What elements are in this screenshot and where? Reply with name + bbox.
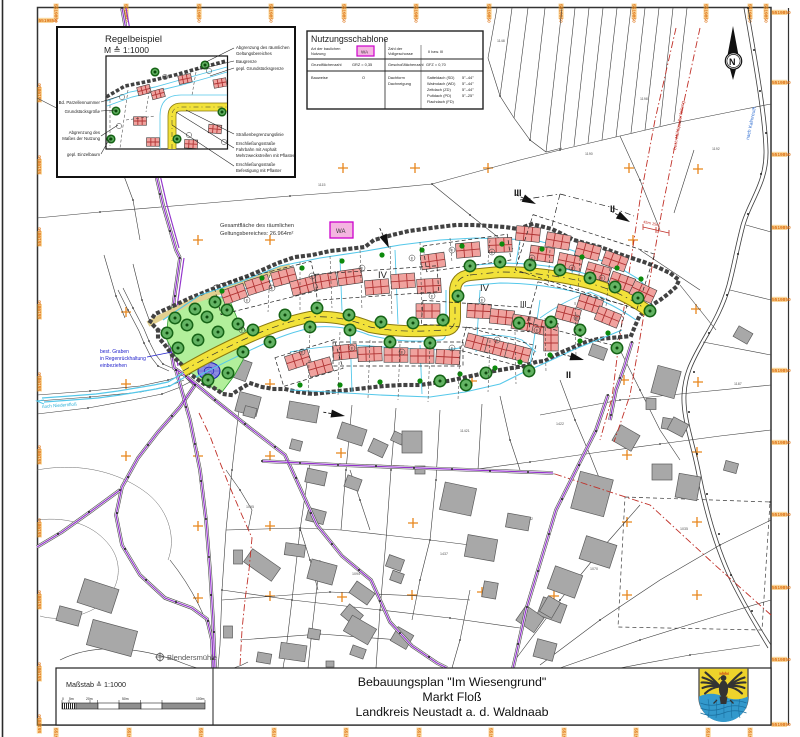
svg-text:5519850: 5519850 [341,4,347,23]
svg-text:Straßenbegrenzungslinie: Straßenbegrenzungslinie [236,132,284,137]
svg-text:8: 8 [536,329,538,333]
svg-text:GRZ = 0,35: GRZ = 0,35 [352,62,372,67]
svg-text:Bebauungsplan "Im Wiesengrund": Bebauungsplan "Im Wiesengrund" [358,675,547,689]
svg-text:GFZ = 0,70: GFZ = 0,70 [426,62,447,67]
svg-text:1192: 1192 [712,147,720,151]
svg-text:5519850: 5519850 [37,83,43,102]
svg-text:best. Graben: best. Graben [100,349,129,355]
svg-text:Geltungsbereiches: 26.964m²: Geltungsbereiches: 26.964m² [220,231,294,237]
svg-text:8: 8 [571,267,573,271]
svg-text:5519850: 5519850 [416,728,422,737]
svg-text:0: 0 [62,697,64,701]
svg-text:5519850: 5519850 [37,662,43,681]
svg-text:5519850: 5519850 [486,4,492,23]
svg-text:8: 8 [361,267,363,271]
svg-text:1422: 1422 [556,422,564,426]
svg-text:5°–44°: 5°–44° [462,81,474,86]
svg-text:8: 8 [311,275,313,279]
svg-text:5519850: 5519850 [488,728,494,737]
svg-text:5519850: 5519850 [772,368,791,374]
svg-text:50m: 50m [122,697,129,701]
svg-text:5519850: 5519850 [772,225,791,231]
svg-text:Grundstücksgröße: Grundstücksgröße [65,109,101,114]
svg-text:5519850: 5519850 [772,152,791,158]
svg-text:8: 8 [301,351,303,355]
svg-text:Abgrenzung des räumlichen: Abgrenzung des räumlichen [236,45,290,50]
svg-text:8: 8 [481,299,483,303]
svg-text:WA: WA [361,50,368,55]
svg-text:II: II [610,204,615,214]
svg-text:8: 8 [491,251,493,255]
svg-text:8: 8 [451,347,453,351]
svg-text:Erschließungsstraße: Erschließungsstraße [236,162,276,167]
svg-text:5519850: 5519850 [37,714,43,733]
svg-text:5519850: 5519850 [196,4,202,23]
svg-text:Geltungsbereiches: Geltungsbereiches [236,51,272,56]
svg-text:Dachneigung: Dachneigung [388,81,411,86]
svg-text:Landkreis Neustadt a. d. Waldn: Landkreis Neustadt a. d. Waldnaab [355,705,548,719]
svg-text:1070: 1070 [590,567,598,571]
svg-text:5519850: 5519850 [271,728,277,737]
svg-text:Zeltdach (ZD): Zeltdach (ZD) [427,87,451,92]
svg-text:Baugrenze: Baugrenze [236,59,257,64]
svg-text:5519850: 5519850 [772,512,791,518]
svg-text:Dachform: Dachform [388,75,405,80]
svg-text:gepl. Grundstücksgrenze: gepl. Grundstücksgrenze [236,66,284,71]
svg-text:1094: 1094 [352,572,360,576]
svg-text:5519850: 5519850 [763,4,769,23]
svg-text:Flachdach (FD): Flachdach (FD) [427,99,455,104]
svg-text:Walmdach (WD): Walmdach (WD) [427,81,456,86]
svg-text:Erschließungsstraße: Erschließungsstraße [236,141,276,146]
svg-text:Befestigung mit Pflaster: Befestigung mit Pflaster [236,168,282,173]
svg-text:5519850: 5519850 [772,657,791,663]
svg-text:II: II [566,370,571,380]
svg-text:1190: 1190 [585,152,593,156]
svg-text:Satteldach (SD): Satteldach (SD) [427,75,455,80]
svg-text:5519850: 5519850 [198,728,204,737]
svg-text:5519850: 5519850 [37,445,43,464]
svg-text:O: O [362,75,365,80]
svg-text:8: 8 [241,329,243,333]
svg-text:5m: 5m [69,697,74,701]
svg-text:100m: 100m [196,697,205,701]
svg-text:5519850: 5519850 [39,18,58,24]
svg-text:5519850: 5519850 [37,518,43,537]
svg-text:Markt Floß: Markt Floß [422,690,482,704]
svg-text:WA: WA [336,229,345,235]
svg-text:N: N [729,57,736,67]
svg-text:5519850: 5519850 [343,728,349,737]
svg-text:20m: 20m [86,697,93,701]
svg-text:einbeziehen: einbeziehen [100,363,127,369]
svg-text:Vollgeschosse: Vollgeschosse [388,51,413,56]
svg-text:5519850: 5519850 [772,585,791,591]
svg-text:III: III [514,188,522,198]
svg-text:gepl. Einzelbaum: gepl. Einzelbaum [67,152,100,157]
svg-text:Pultdach (PD): Pultdach (PD) [427,93,452,98]
svg-text:8: 8 [576,317,578,321]
svg-text:8: 8 [401,351,403,355]
svg-text:8: 8 [531,257,533,261]
svg-text:Mehrzweckstreifen mit Pflaster: Mehrzweckstreifen mit Pflaster [236,153,295,158]
svg-text:5519850: 5519850 [268,4,274,23]
svg-text:5519850: 5519850 [703,4,709,23]
svg-text:Regelbeispiel: Regelbeispiel [105,34,162,45]
svg-text:5°–44°: 5°–44° [462,87,474,92]
svg-text:5°–44°: 5°–44° [462,75,474,80]
svg-text:Gesamtfläche des räumlichen: Gesamtfläche des räumlichen [220,223,294,229]
svg-text:5519850: 5519850 [747,4,753,23]
svg-text:1187: 1187 [734,382,742,386]
svg-text:5519850: 5519850 [705,728,711,737]
svg-text:5519850: 5519850 [53,728,59,737]
svg-text:5519850: 5519850 [772,440,791,446]
svg-text:in Regenrückhaltung: in Regenrückhaltung [100,356,146,362]
svg-text:5519850: 5519850 [413,4,419,23]
svg-text:Maßstab ≙ 1:1000: Maßstab ≙ 1:1000 [66,680,126,689]
svg-text:IV: IV [480,283,490,294]
svg-text:Grundflächenzahl: Grundflächenzahl [311,62,342,67]
svg-text:5519850: 5519850 [772,722,791,728]
svg-text:1035: 1035 [680,527,688,531]
svg-text:8: 8 [451,249,453,253]
svg-text:5519850: 5519850 [772,10,791,16]
svg-text:Fahrbahn mit Asphalt: Fahrbahn mit Asphalt [236,147,277,152]
svg-text:1198: 1198 [640,97,648,101]
svg-text:III: III [520,300,527,309]
svg-text:8: 8 [351,347,353,351]
svg-text:5519850: 5519850 [37,300,43,319]
svg-text:Abgrenzung des: Abgrenzung des [69,130,100,135]
svg-text:5519850: 5519850 [633,728,639,737]
svg-text:IV: IV [378,270,388,281]
svg-text:5519850: 5519850 [37,227,43,246]
svg-text:5519850: 5519850 [37,155,43,174]
svg-text:1437: 1437 [440,552,448,556]
svg-text:5519850: 5519850 [747,728,753,737]
svg-text:1148: 1148 [497,39,505,43]
svg-text:Bd. Parzellennummer: Bd. Parzellennummer [59,100,101,105]
svg-text:1115: 1115 [318,183,325,187]
svg-text:5519850: 5519850 [561,728,567,737]
svg-text:Nutzung: Nutzung [311,51,326,56]
svg-text:8: 8 [431,295,433,299]
svg-text:5519850: 5519850 [37,372,43,391]
svg-text:M ≙ 1:1000: M ≙ 1:1000 [104,45,149,55]
svg-text:5519850: 5519850 [126,728,132,737]
svg-text:5519850: 5519850 [37,590,43,609]
svg-text:II bzw. III: II bzw. III [428,49,443,54]
svg-text:Bauweise: Bauweise [311,75,328,80]
svg-text:1095: 1095 [246,505,254,509]
svg-text:8: 8 [496,339,498,343]
svg-text:5°–25°: 5°–25° [462,93,474,98]
svg-text:Blendersmühle: Blendersmühle [167,653,217,662]
svg-text:8: 8 [246,299,248,303]
svg-text:8: 8 [411,257,413,261]
svg-text:11421: 11421 [460,429,470,433]
svg-text:8: 8 [271,287,273,291]
svg-text:5519850: 5519850 [772,80,791,86]
svg-text:5519850: 5519850 [772,297,791,303]
svg-text:Maßes der Nutzung: Maßes der Nutzung [62,136,100,141]
svg-text:8: 8 [601,277,603,281]
svg-text:Geschoßflächenzahl: Geschoßflächenzahl [388,62,424,67]
svg-text:5519850: 5519850 [631,4,637,23]
svg-text:Nutzungsschablone: Nutzungsschablone [311,34,388,44]
